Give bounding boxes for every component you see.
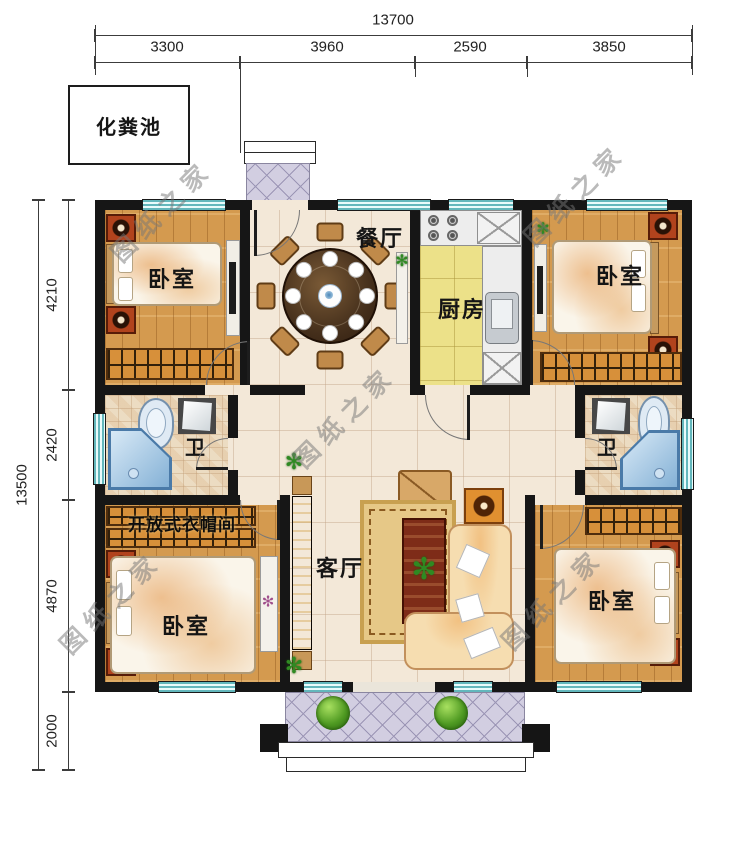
dim-left-seg-2: 4870 xyxy=(44,579,61,612)
bedroom-bl-label: 卧室 xyxy=(162,609,210,641)
wall-int xyxy=(95,385,205,395)
front-step xyxy=(286,757,526,772)
washing-machine xyxy=(178,398,216,434)
wall-int xyxy=(228,395,238,438)
side-table-lamp xyxy=(464,488,504,524)
plant: ✻ xyxy=(536,222,549,238)
dining-label: 餐厅 xyxy=(356,221,404,253)
kitchen-sink xyxy=(485,292,519,344)
window-bath-left xyxy=(93,413,106,485)
bedroom-bl-door xyxy=(240,500,280,540)
flower: ✻ xyxy=(262,595,275,610)
bedroom-tr-label: 卧室 xyxy=(596,259,644,291)
bath-right-door xyxy=(585,438,617,470)
tv xyxy=(229,262,236,314)
tv-stand-end xyxy=(292,476,312,495)
dim-top-seg-line xyxy=(95,62,692,63)
kitchen-label: 厨房 xyxy=(438,292,486,324)
dim-left-seg-3: 2000 xyxy=(44,714,61,747)
window-bedroom-tl xyxy=(142,199,226,211)
cloakroom-label: 开放式衣帽间 xyxy=(128,511,236,536)
dim-top-seg-1: 3960 xyxy=(310,39,343,56)
back-door xyxy=(254,210,300,256)
stove-burner xyxy=(428,215,439,226)
front-step xyxy=(278,742,534,758)
wall-int xyxy=(410,210,420,385)
back-door-threshold xyxy=(252,200,308,210)
porch-bush xyxy=(316,696,350,730)
bedroom-br-door xyxy=(540,505,584,549)
wall-int xyxy=(575,385,692,395)
front-door-threshold xyxy=(353,682,435,692)
stove-burner xyxy=(428,230,439,241)
window-bedroom-tr xyxy=(586,199,668,211)
dim-top-seg-0: 3300 xyxy=(150,39,183,56)
nightstand xyxy=(106,306,136,334)
bedroom-tr-door xyxy=(530,340,575,385)
window-bath-right xyxy=(681,418,694,490)
bedroom-br-label: 卧室 xyxy=(588,584,636,616)
stove-burner xyxy=(447,215,458,226)
window-dining xyxy=(337,199,431,211)
wall-int xyxy=(575,395,585,438)
counter-hatch xyxy=(483,352,521,384)
bath-left-door xyxy=(196,438,228,470)
dim-top-seg-2: 2590 xyxy=(453,39,486,56)
washing-machine xyxy=(592,398,630,434)
window-bedroom-bl xyxy=(158,681,236,693)
wardrobe xyxy=(585,507,682,535)
window-bedroom-br xyxy=(556,681,642,693)
bedroom-tl-door xyxy=(206,341,250,385)
bedroom-tl-label: 卧室 xyxy=(148,262,196,294)
kitchen-door xyxy=(425,395,470,440)
dim-left-total: 13500 xyxy=(14,464,31,506)
wall-int xyxy=(95,495,240,505)
dim-top-seg-3: 3850 xyxy=(592,39,625,56)
nightstand xyxy=(648,212,678,240)
dim-top-total: 13700 xyxy=(372,12,414,29)
dim-top-total-line xyxy=(95,35,692,36)
wall-int xyxy=(575,470,585,495)
tv-wall xyxy=(292,496,312,650)
nightstand xyxy=(106,214,136,242)
wall-int xyxy=(585,495,692,505)
stove-burner xyxy=(447,230,458,241)
dim-left-total-line xyxy=(38,200,39,770)
plant: ✻ xyxy=(285,655,303,677)
dim-left-seg-0: 4210 xyxy=(44,278,61,311)
plant: ✻ xyxy=(395,254,408,270)
wall-int xyxy=(250,385,305,395)
plant: ✻ xyxy=(285,451,303,473)
wall-int xyxy=(525,495,535,692)
living-label: 客厅 xyxy=(316,551,364,583)
septic-tank-box: 化粪池 xyxy=(68,85,190,165)
counter-hatch xyxy=(477,212,520,244)
porch-bush xyxy=(434,696,468,730)
septic-tank-label: 化粪池 xyxy=(96,111,162,140)
wall-int xyxy=(228,470,238,495)
back-porch xyxy=(246,163,310,201)
dim-left-seg-1: 2420 xyxy=(44,428,61,461)
wall-int xyxy=(410,385,425,395)
wall-int xyxy=(470,385,530,395)
dim-left-seg-line xyxy=(68,200,69,770)
tv xyxy=(537,266,543,314)
table-centerpiece xyxy=(318,284,342,308)
coffee-table-plant: ✻ xyxy=(411,555,436,585)
floor-plan: 13700 3300 3960 2590 3850 13500 4210 242… xyxy=(0,0,750,844)
